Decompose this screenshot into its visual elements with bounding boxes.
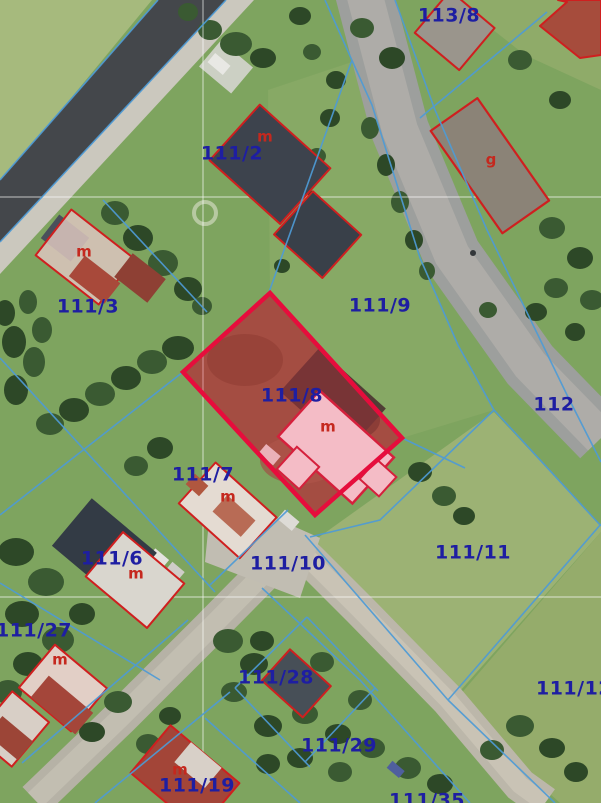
building-label-m: m	[76, 245, 92, 260]
building-label-m: m	[257, 130, 273, 145]
building-label-m: m	[128, 567, 144, 582]
parcel-label-111-2: 111/2	[201, 145, 263, 164]
parcel-label-111-11: 111/11	[435, 544, 511, 563]
building-label-m: m	[320, 420, 336, 435]
building-label-m: m	[52, 653, 68, 668]
parcel-label-111-8: 111/8	[261, 387, 323, 406]
labels-layer: 113/8111/2111/3111/9111/8112111/7111/111…	[0, 0, 601, 803]
building-label-g: g	[486, 153, 497, 168]
parcel-label-111-10: 111/10	[250, 555, 326, 574]
building-label-m: m	[220, 490, 236, 505]
map-viewport[interactable]: 113/8111/2111/3111/9111/8112111/7111/111…	[0, 0, 601, 803]
parcel-label-111-9: 111/9	[349, 297, 411, 316]
parcel-label-111-35: 111/35	[389, 792, 465, 803]
parcel-label-111-28: 111/28	[238, 669, 314, 688]
parcel-label-111-3: 111/3	[57, 298, 119, 317]
parcel-label-111-29: 111/29	[301, 737, 377, 756]
building-label-m: m	[172, 763, 188, 778]
parcel-label-111-27: 111/27	[0, 622, 72, 641]
parcel-label-113-8: 113/8	[418, 7, 480, 26]
parcel-label-112: 112	[533, 396, 574, 415]
parcel-label-111-19: 111/19	[159, 777, 235, 796]
parcel-label-111-7: 111/7	[172, 466, 234, 485]
parcel-label-111-12: 111/12	[536, 680, 601, 699]
